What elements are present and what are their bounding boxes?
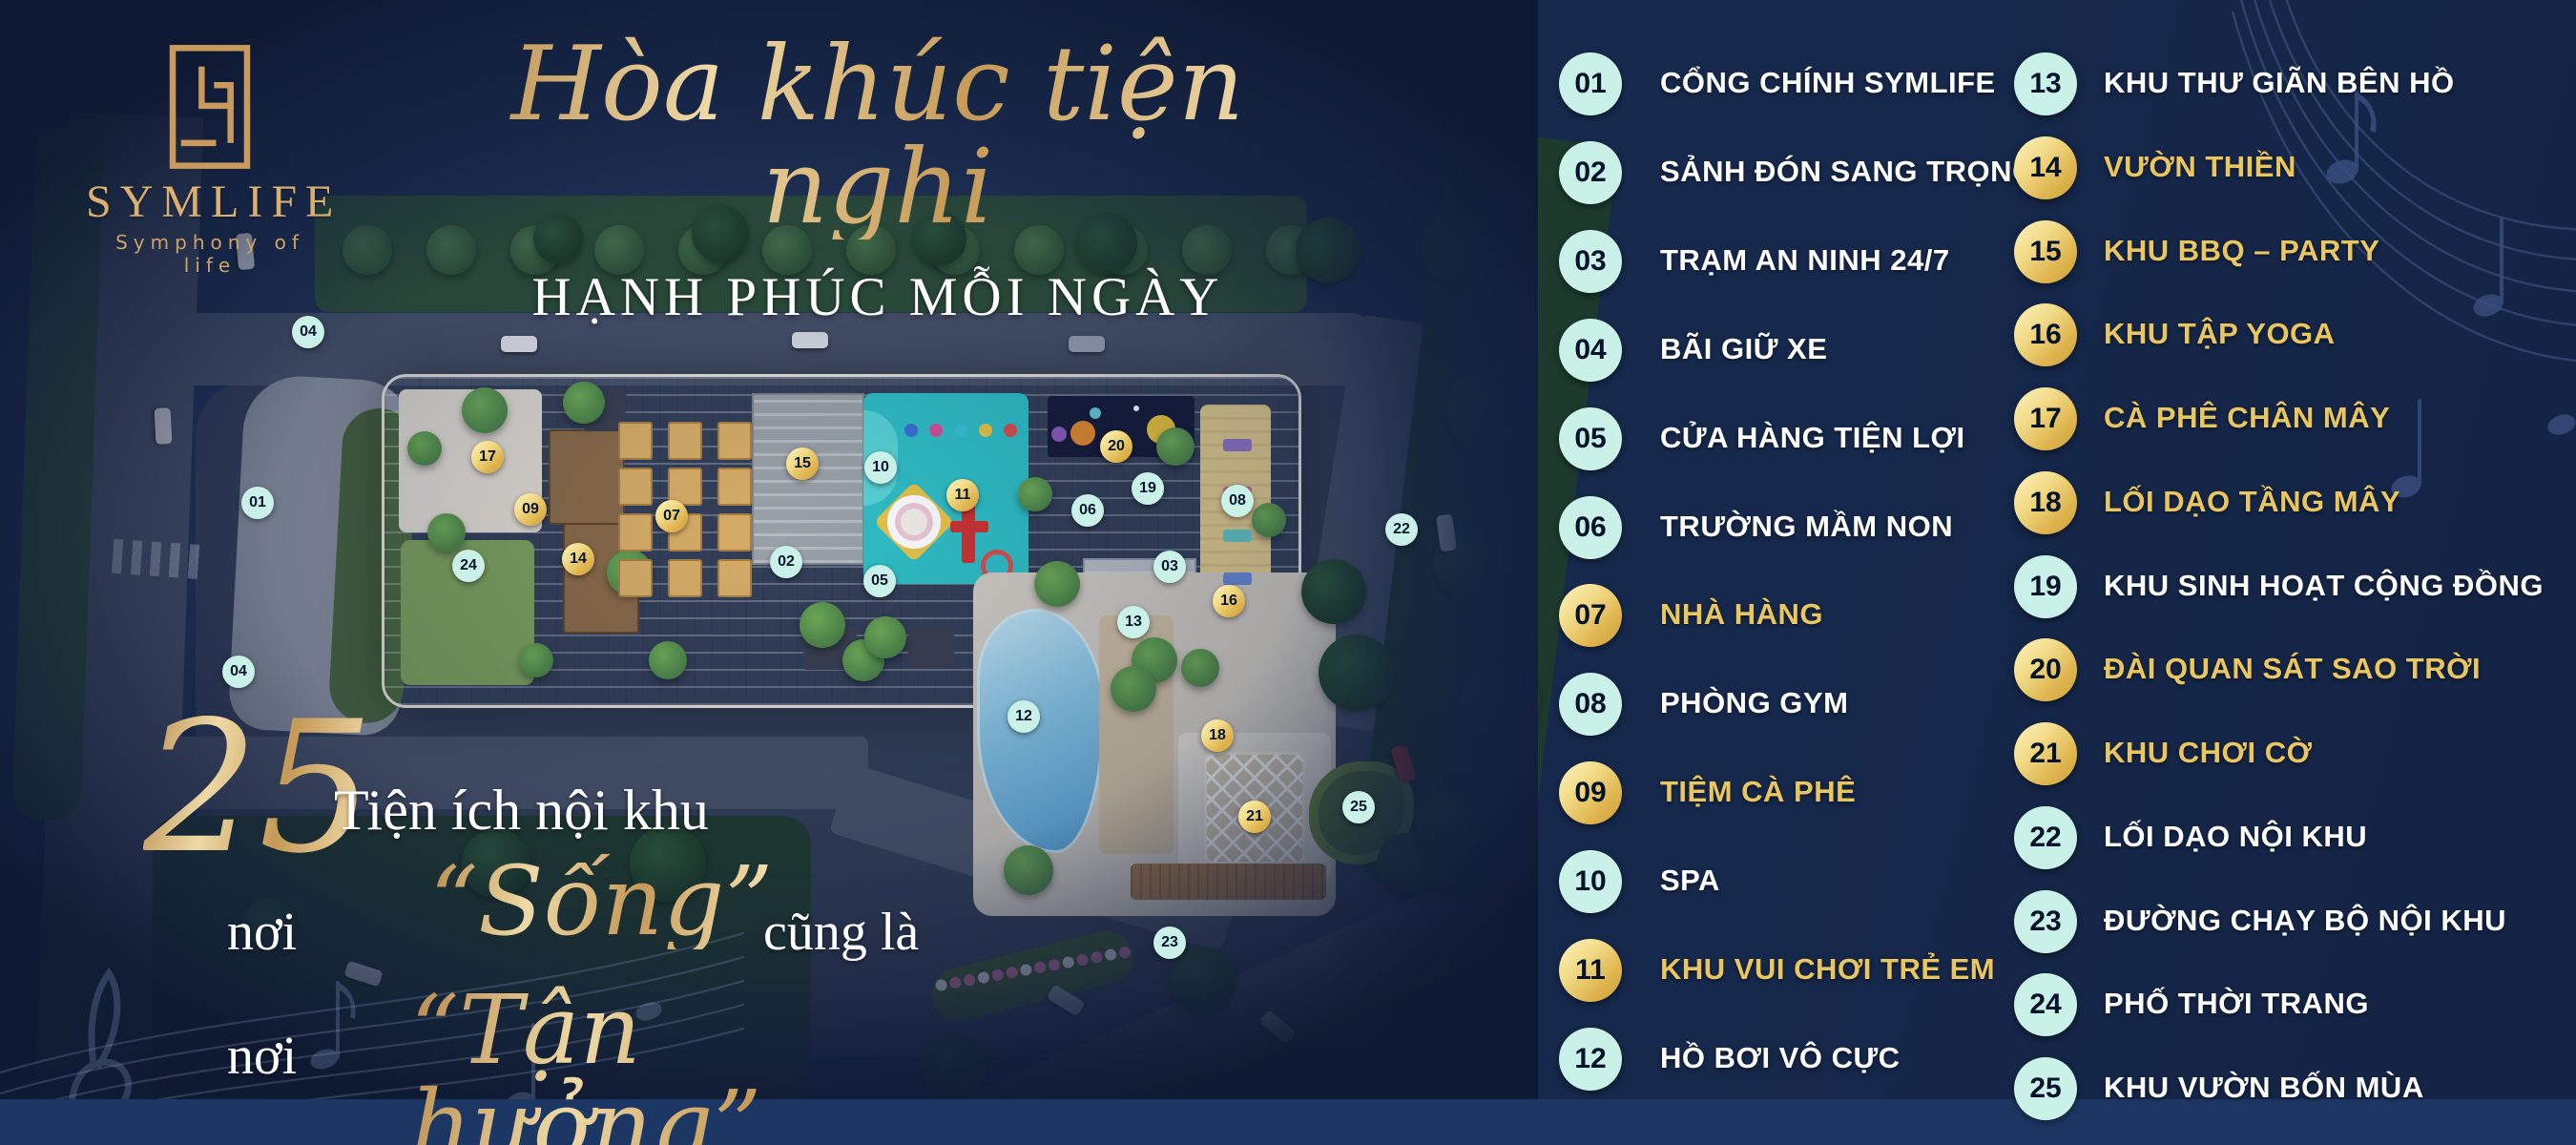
legend-label-21: KHU CHƠI CỜ <box>2104 736 2313 770</box>
legend-number-19: 19 <box>2014 555 2077 618</box>
legend-number-03: 03 <box>1559 230 1622 293</box>
legend-number-21: 21 <box>2014 722 2077 785</box>
legend-number-24: 24 <box>2014 973 2077 1036</box>
legend-label-17: CÀ PHÊ CHÂN MÂY <box>2104 401 2390 435</box>
legend-label-05: CỬA HÀNG TIỆN LỢI <box>1660 421 1965 455</box>
legend-number-07: 07 <box>1559 584 1622 647</box>
legend-label-09: TIỆM CÀ PHÊ <box>1660 775 1856 809</box>
legend-label-01: CỔNG CHÍNH SYMLIFE <box>1660 66 1996 100</box>
legend-label-06: TRƯỜNG MẦM NON <box>1660 510 1953 544</box>
legend-label-07: NHÀ HÀNG <box>1660 597 1823 632</box>
legend-label-13: KHU THƯ GIÃN BÊN HỒ <box>2104 66 2455 100</box>
legend-number-14: 14 <box>2014 136 2077 199</box>
legend-label-18: LỐI DẠO TẦNG MÂY <box>2104 485 2400 519</box>
legend-label-23: ĐƯỜNG CHẠY BỘ NỘI KHU <box>2104 904 2506 938</box>
legend-label-19: KHU SINH HOẠT CỘNG ĐỒNG <box>2104 569 2544 603</box>
legend-number-22: 22 <box>2014 806 2077 869</box>
amenity-legend: 01CỔNG CHÍNH SYMLIFE02SẢNH ĐÓN SANG TRỌN… <box>0 0 2576 1145</box>
legend-number-18: 18 <box>2014 471 2077 534</box>
legend-label-22: LỐI DẠO NỘI KHU <box>2104 820 2367 854</box>
legend-number-23: 23 <box>2014 890 2077 953</box>
legend-number-13: 13 <box>2014 52 2077 115</box>
legend-label-03: TRẠM AN NINH 24/7 <box>1660 243 1950 278</box>
legend-number-25: 25 <box>2014 1057 2077 1120</box>
legend-label-20: ĐÀI QUAN SÁT SAO TRỜI <box>2104 652 2481 686</box>
poster: ↑ ↑ <box>0 0 2576 1145</box>
legend-number-02: 02 <box>1559 141 1622 204</box>
legend-number-09: 09 <box>1559 761 1622 824</box>
legend-number-15: 15 <box>2014 220 2077 283</box>
legend-number-06: 06 <box>1559 496 1622 559</box>
legend-label-15: KHU BBQ – PARTY <box>2104 234 2379 268</box>
legend-label-02: SẢNH ĐÓN SANG TRỌNG <box>1660 155 2036 189</box>
legend-label-04: BÃI GIỮ XE <box>1660 332 1827 366</box>
legend-number-20: 20 <box>2014 638 2077 701</box>
legend-number-11: 11 <box>1559 939 1622 1002</box>
legend-number-16: 16 <box>2014 303 2077 366</box>
legend-number-05: 05 <box>1559 407 1622 470</box>
legend-number-08: 08 <box>1559 673 1622 736</box>
legend-number-12: 12 <box>1559 1028 1622 1091</box>
legend-number-01: 01 <box>1559 52 1622 115</box>
legend-label-10: SPA <box>1660 864 1720 898</box>
legend-label-12: HỒ BƠI VÔ CỰC <box>1660 1041 1901 1075</box>
legend-number-17: 17 <box>2014 387 2077 450</box>
legend-label-24: PHỐ THỜI TRANG <box>2104 987 2369 1021</box>
legend-label-25: KHU VƯỜN BỐN MÙA <box>2104 1071 2424 1105</box>
legend-number-10: 10 <box>1559 850 1622 913</box>
legend-label-11: KHU VUI CHƠI TRẺ EM <box>1660 952 1995 987</box>
legend-label-14: VƯỜN THIỀN <box>2104 150 2296 184</box>
legend-label-08: PHÒNG GYM <box>1660 686 1848 720</box>
legend-number-04: 04 <box>1559 319 1622 382</box>
legend-label-16: KHU TẬP YOGA <box>2104 317 2336 351</box>
